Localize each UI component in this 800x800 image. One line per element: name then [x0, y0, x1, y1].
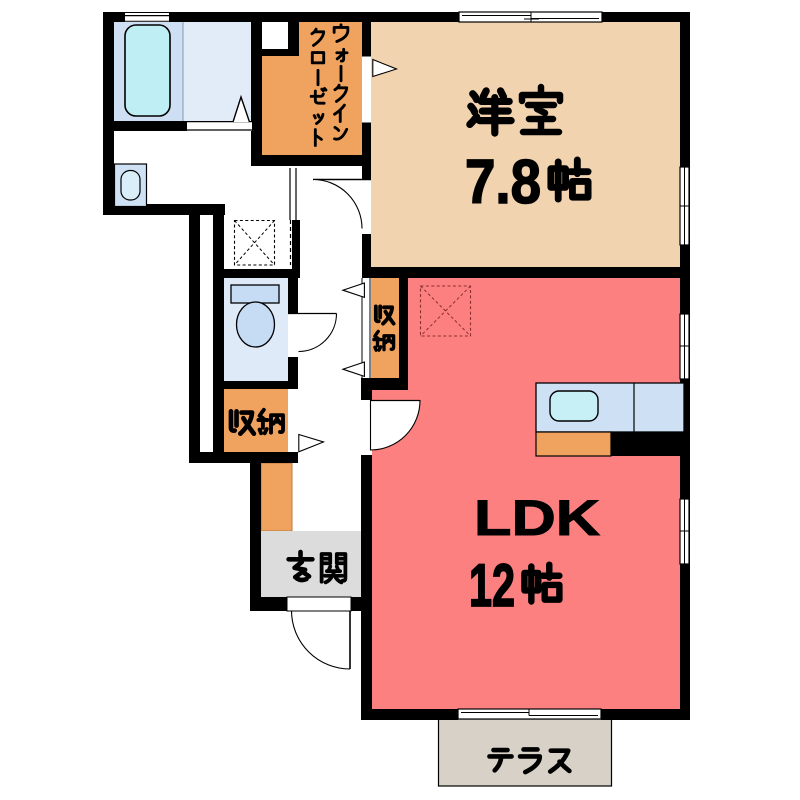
svg-text:12: 12 — [469, 552, 515, 619]
svg-text:7.8: 7.8 — [465, 148, 541, 217]
svg-text:LDK: LDK — [474, 490, 600, 546]
